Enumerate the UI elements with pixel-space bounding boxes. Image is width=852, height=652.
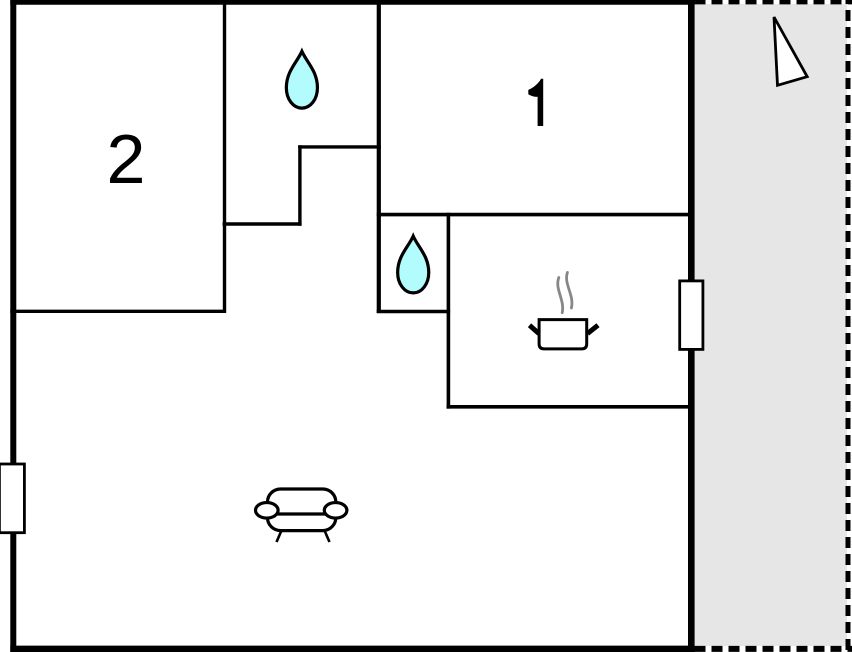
svg-text:2: 2 — [107, 120, 146, 198]
